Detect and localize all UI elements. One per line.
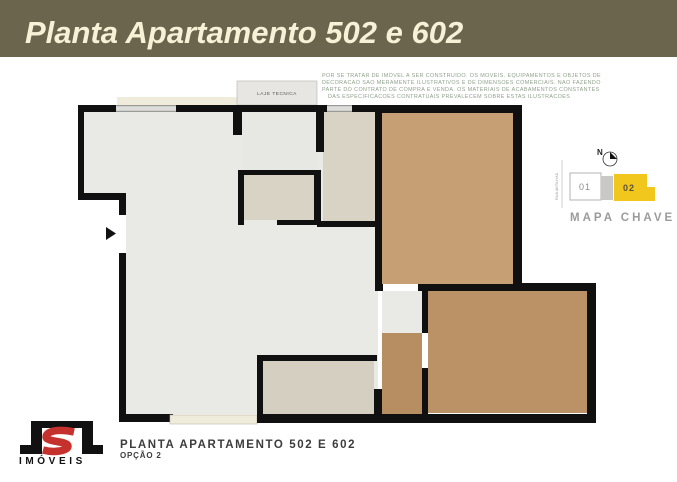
- svg-text:01: 01: [579, 182, 591, 192]
- svg-text:02: 02: [623, 183, 635, 193]
- svg-text:DAS ESPECIFICACOES CONTRATUAIS: DAS ESPECIFICACOES CONTRATUAIS PREVALECE…: [328, 94, 570, 100]
- svg-text:Planta Apartamento 502 e 602: Planta Apartamento 502 e 602: [25, 15, 463, 50]
- svg-text:LAJE TECNICA: LAJE TECNICA: [257, 91, 297, 97]
- svg-text:RUA ANTILHAS: RUA ANTILHAS: [555, 172, 559, 200]
- svg-text:MAPA CHAVE: MAPA CHAVE: [570, 212, 675, 224]
- svg-text:PARTE DO CONTRATO DE COMPRA E: PARTE DO CONTRATO DE COMPRA E VENDA. OS …: [322, 87, 600, 93]
- svg-text:PLANTA APARTAMENTO 502 E 602: PLANTA APARTAMENTO 502 E 602: [120, 439, 356, 451]
- svg-text:IMÓVEIS: IMÓVEIS: [19, 454, 86, 467]
- svg-text:OPÇÃO 2: OPÇÃO 2: [120, 451, 162, 460]
- svg-text:N: N: [597, 148, 603, 157]
- svg-text:POR SE TRATAR DE IMOVEL A SER: POR SE TRATAR DE IMOVEL A SER CONSTRUIDO…: [322, 73, 601, 79]
- svg-text:DECORACAO SAO MERAMENTE ILUSTR: DECORACAO SAO MERAMENTE ILUSTRATIVOS E D…: [322, 80, 601, 86]
